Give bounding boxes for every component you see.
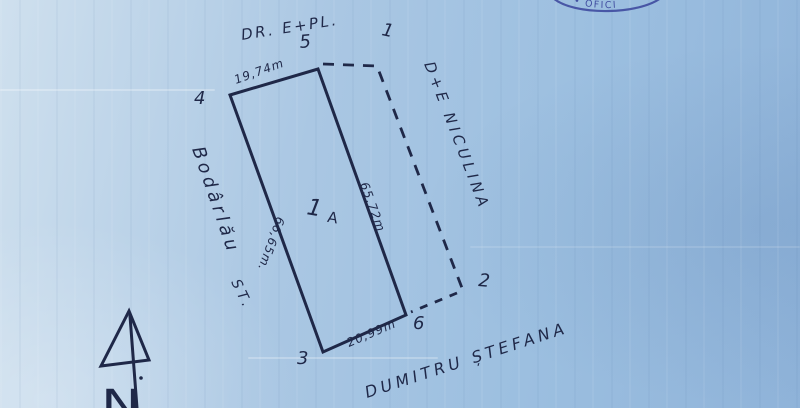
parcel-id: 1 A (305, 194, 342, 227)
point-label-1: 1 (380, 19, 396, 42)
plot-plan-drawing: • • OFICI DR. E+PL. 1 2 3 4 5 6 19,74m 6… (0, 0, 800, 408)
north-arrow-head (101, 311, 149, 366)
point-label-4: 4 (194, 88, 205, 109)
point-label-3: 3 (297, 348, 308, 369)
neighbor-left-name: Bodârlău (187, 144, 244, 257)
road-label: DR. E+PL. (240, 11, 340, 44)
neighbor-right-name: D+E NICULINA (420, 59, 493, 213)
point-label-2: 2 (478, 270, 491, 292)
point-label-5: 5 (299, 31, 312, 53)
north-letter: N (101, 382, 141, 408)
parcel-number: 1 (305, 194, 324, 222)
point-label-6: 6 (413, 313, 424, 334)
neighbor-left-abbr: ST. (227, 277, 256, 313)
pen-dot (139, 376, 143, 380)
scanned-sketch-page: • • OFICI DR. E+PL. 1 2 3 4 5 6 19,74m 6… (0, 0, 800, 408)
north-arrow: N (101, 311, 149, 408)
dashed-boundary-bottom (411, 293, 457, 312)
stamp-partial: • • OFICI (552, 0, 664, 11)
dimension-bottom: 20,99m (345, 317, 398, 350)
parcel-letter: A (326, 208, 340, 228)
dimension-right: 65,72m (357, 180, 388, 234)
